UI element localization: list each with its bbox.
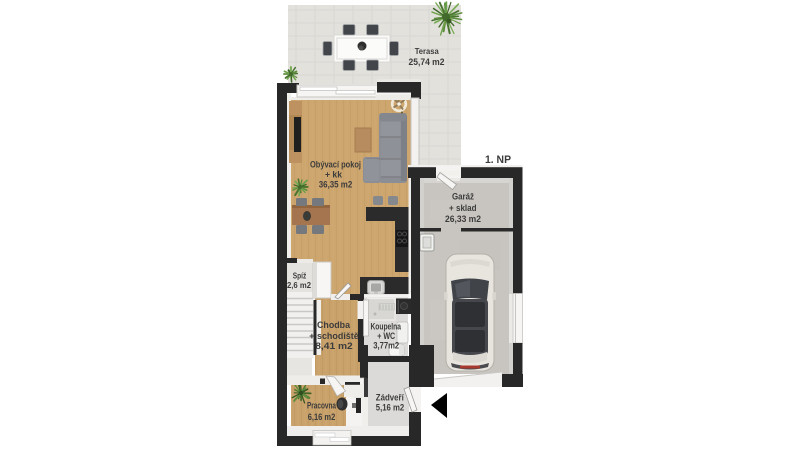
svg-text:Chodba: Chodba: [317, 320, 351, 330]
svg-text:3,77m2: 3,77m2: [373, 341, 399, 351]
svg-text:5,16 m2: 5,16 m2: [376, 403, 405, 413]
svg-text:+ schodiště: + schodiště: [309, 331, 359, 341]
svg-text:25,74 m2: 25,74 m2: [409, 57, 445, 67]
svg-text:8,41 m2: 8,41 m2: [315, 341, 353, 351]
svg-text:Zádveří: Zádveří: [376, 393, 404, 403]
svg-text:Pracovna: Pracovna: [307, 401, 337, 411]
svg-text:Terasa: Terasa: [415, 46, 439, 56]
svg-text:26,33 m2: 26,33 m2: [445, 214, 481, 224]
svg-text:Garáž: Garáž: [452, 192, 474, 202]
svg-text:1. NP: 1. NP: [485, 154, 511, 166]
svg-text:2,6 m2: 2,6 m2: [287, 281, 312, 290]
svg-text:+ kk: + kk: [325, 170, 343, 180]
svg-text:Obývací pokoj: Obývací pokoj: [310, 160, 361, 170]
svg-text:36,35 m2: 36,35 m2: [319, 180, 353, 190]
svg-text:+ sklad: + sklad: [449, 203, 477, 213]
svg-text:+ WC: + WC: [377, 331, 395, 341]
svg-text:6,16 m2: 6,16 m2: [308, 412, 336, 422]
svg-text:Spíž: Spíž: [293, 272, 307, 281]
svg-text:Koupelna: Koupelna: [370, 322, 401, 332]
